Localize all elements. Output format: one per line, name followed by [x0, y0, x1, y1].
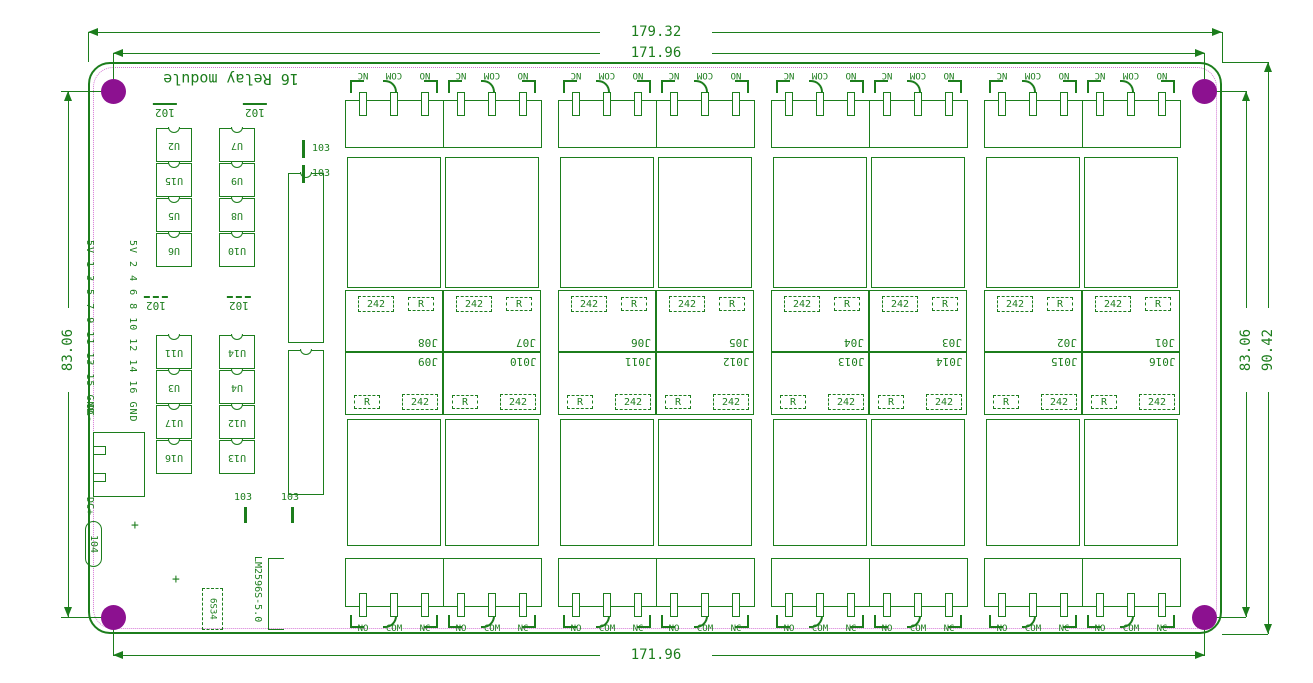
terminal-pin-label: NC — [870, 70, 904, 80]
ic-ref-label: U5 — [168, 210, 180, 221]
resistor-box: R — [932, 297, 958, 311]
relay-body — [658, 419, 752, 546]
ic-notch — [231, 232, 243, 238]
terminal-pin-label: NO — [1145, 70, 1179, 80]
jumper-label: J014 — [936, 355, 963, 368]
terminal-pin — [1158, 92, 1166, 116]
ic-u6: U6 — [156, 233, 192, 267]
terminal-pin-label: NO — [408, 70, 442, 80]
ic-ref-label: U8 — [231, 210, 243, 221]
resistor-box: R — [1145, 297, 1171, 311]
dim-arrow — [1195, 651, 1205, 659]
terminal-pin — [998, 593, 1006, 617]
resistor-box: R — [719, 297, 745, 311]
ic-group-label: 102 — [227, 296, 251, 312]
terminal-pin — [1060, 92, 1068, 116]
resistor-box: R — [834, 297, 860, 311]
terminal-pin — [457, 593, 465, 617]
mounting-hole — [1192, 605, 1217, 630]
dc-plus-label: DC+ — [84, 497, 95, 515]
marker-bar — [244, 507, 247, 523]
ic-notch — [168, 197, 180, 203]
part-242-box: 242 — [1041, 394, 1077, 410]
jumper-label: J010 — [510, 355, 537, 368]
terminal-pin — [816, 92, 824, 116]
ic-u8: U8 — [219, 198, 255, 232]
ic-group-label: 102 — [243, 103, 267, 119]
marker-bar — [291, 507, 294, 523]
terminal-pin — [603, 92, 611, 116]
relay-driver-cell: J010R242 — [443, 352, 541, 415]
terminal-pin — [519, 593, 527, 617]
relay-body — [986, 157, 1080, 288]
resistor-box: R — [780, 395, 806, 409]
resistor-box: R — [878, 395, 904, 409]
ic-u16: U16 — [156, 440, 192, 474]
terminal-pin — [634, 92, 642, 116]
relay-driver-cell: 242RJ07 — [443, 290, 541, 352]
resistor-box: R — [1047, 297, 1073, 311]
ic-ref-label: U10 — [228, 245, 246, 256]
dim-text-left: 83.06 — [60, 308, 76, 392]
relay-body — [773, 419, 867, 546]
ic-notch — [231, 404, 243, 410]
marker-label-103: 103 — [281, 492, 299, 503]
relay-body — [871, 419, 965, 546]
jumper-label: J07 — [516, 336, 536, 349]
part-242-box: 242 — [615, 394, 651, 410]
ic-notch — [168, 162, 180, 168]
terminal-pin — [785, 92, 793, 116]
resistor-box: R — [452, 395, 478, 409]
terminal-pin-label: NO — [932, 70, 966, 80]
dim-arrow — [1242, 607, 1250, 617]
terminal-block-divider — [869, 100, 870, 148]
marker-bar — [302, 140, 305, 158]
dim-arrow — [1212, 28, 1222, 36]
ic-u13: U13 — [219, 440, 255, 474]
plus-mark: + — [172, 572, 180, 587]
dip-ic — [288, 350, 324, 495]
ic-u11: U11 — [156, 335, 192, 369]
ic-u3: U3 — [156, 370, 192, 404]
terminal-pin — [572, 593, 580, 617]
jumper-label: J011 — [625, 355, 652, 368]
marker-label-103: 103 — [312, 168, 330, 179]
terminal-pin-label: NC — [346, 70, 380, 80]
dim-arrow — [1264, 62, 1272, 72]
terminal-pin-label: COM — [377, 70, 411, 80]
terminal-block-divider — [1082, 100, 1083, 148]
dc-minus-label: DC- — [84, 404, 95, 422]
dim-arrow — [1242, 91, 1250, 101]
terminal-pin-label: NO — [834, 70, 868, 80]
mounting-hole — [101, 605, 126, 630]
ic-notch — [231, 197, 243, 203]
terminal-block-divider — [1082, 558, 1083, 607]
part-242-box: 242 — [1139, 394, 1175, 410]
marker-label-103: 103 — [234, 492, 252, 503]
terminal-pin-label: NO — [719, 70, 753, 80]
ic-group-label: 102 — [153, 103, 177, 119]
ic-u5: U5 — [156, 198, 192, 232]
terminal-pin-label: COM — [1016, 70, 1050, 80]
relay-driver-cell: 242RJ01 — [1082, 290, 1180, 352]
terminal-pin — [519, 92, 527, 116]
relay-driver-cell: J013R242 — [771, 352, 869, 415]
terminal-block-divider — [656, 100, 657, 148]
terminal-pin — [670, 593, 678, 617]
relay-body — [773, 157, 867, 288]
resistor-box: R — [408, 297, 434, 311]
marker-label-103: 103 — [312, 143, 330, 154]
ic-u10: U10 — [219, 233, 255, 267]
dim-text-bottom: 171.96 — [600, 647, 712, 663]
terminal-pin-label: COM — [1114, 70, 1148, 80]
terminal-pin-label: NC — [444, 70, 478, 80]
jumper-label: J06 — [631, 336, 651, 349]
ic-ref-label: U6 — [168, 245, 180, 256]
jumper-label: J01 — [1155, 336, 1175, 349]
part-242-box: 242 — [571, 296, 607, 312]
terminal-pin — [1158, 593, 1166, 617]
relay-driver-cell: J09R242 — [345, 352, 443, 415]
part-242-box: 242 — [358, 296, 394, 312]
terminal-pin — [945, 593, 953, 617]
terminal-pin — [816, 593, 824, 617]
terminal-pin — [998, 92, 1006, 116]
terminal-pin — [701, 92, 709, 116]
board-title: 16 Relay module — [148, 70, 314, 88]
terminal-pin-label: NC — [559, 70, 593, 80]
terminal-pin — [572, 92, 580, 116]
terminal-pin-label: NC — [985, 70, 1019, 80]
relay-driver-cell: J014R242 — [869, 352, 967, 415]
part-242-box: 242 — [882, 296, 918, 312]
part-242-box: 242 — [500, 394, 536, 410]
ic-notch — [168, 127, 180, 133]
terminal-pin — [883, 92, 891, 116]
terminal-pin-label: COM — [475, 70, 509, 80]
terminal-pin — [488, 92, 496, 116]
diode-label: 6S34 — [208, 598, 218, 620]
terminal-block-divider — [443, 558, 444, 607]
part-242-box: 242 — [402, 394, 438, 410]
dim-arrow — [113, 49, 123, 57]
ic-notch — [231, 127, 243, 133]
terminal-pin — [1029, 593, 1037, 617]
relay-driver-cell: 242RJ04 — [771, 290, 869, 352]
ic-ref-label: U11 — [165, 347, 183, 358]
terminal-pin — [390, 593, 398, 617]
ic-u17: U17 — [156, 405, 192, 439]
relay-body — [560, 419, 654, 546]
terminal-pin-label: NC — [772, 70, 806, 80]
resistor-box: R — [1091, 395, 1117, 409]
terminal-pin — [847, 593, 855, 617]
mounting-hole — [1192, 79, 1217, 104]
relay-driver-cell: 242RJ05 — [656, 290, 754, 352]
ic-notch — [231, 334, 243, 340]
terminal-pin-label: NC — [657, 70, 691, 80]
ic-u12: U12 — [219, 405, 255, 439]
relay-driver-cell: 242RJ08 — [345, 290, 443, 352]
terminal-block-divider — [869, 558, 870, 607]
resistor-box: R — [354, 395, 380, 409]
relay-body — [986, 419, 1080, 546]
ic-ref-label: U16 — [165, 452, 183, 463]
dim-arrow — [1195, 49, 1205, 57]
ic-ref-label: U2 — [168, 140, 180, 151]
ic-notch — [231, 369, 243, 375]
power-port-label: 104 — [88, 535, 99, 553]
terminal-pin — [1096, 593, 1104, 617]
terminal-pin — [732, 92, 740, 116]
dim-text-top-outer: 179.32 — [600, 24, 712, 40]
ic-ref-label: U12 — [228, 417, 246, 428]
pcb-layout-drawing: 179.32 171.96 171.96 83.06 83.06 90.42 1… — [0, 0, 1313, 683]
dip-ic — [288, 173, 324, 343]
terminal-block-divider — [656, 558, 657, 607]
relay-driver-cell: J011R242 — [558, 352, 656, 415]
terminal-pin-label: NO — [621, 70, 655, 80]
terminal-pin — [421, 593, 429, 617]
terminal-pin — [1060, 593, 1068, 617]
relay-body — [1084, 419, 1178, 546]
relay-driver-cell: 242RJ06 — [558, 290, 656, 352]
jumper-label: J013 — [838, 355, 865, 368]
ic-ref-label: U4 — [231, 382, 243, 393]
terminal-pin-label: NO — [1047, 70, 1081, 80]
jumper-label: J02 — [1057, 336, 1077, 349]
terminal-pin — [701, 593, 709, 617]
terminal-block-divider — [443, 100, 444, 148]
terminal-pin-label: COM — [803, 70, 837, 80]
ic-ref-label: U3 — [168, 382, 180, 393]
dim-text-right-inner: 83.06 — [1238, 308, 1254, 392]
terminal-pin — [670, 92, 678, 116]
terminal-pin — [457, 92, 465, 116]
ic-ref-label: U17 — [165, 417, 183, 428]
terminal-pin — [488, 593, 496, 617]
extension-line — [1222, 62, 1268, 63]
terminal-pin — [634, 593, 642, 617]
terminal-pin-label: NO — [506, 70, 540, 80]
ic-ref-label: U9 — [231, 175, 243, 186]
resistor-box: R — [993, 395, 1019, 409]
dim-arrow — [1264, 624, 1272, 634]
ic-u2: U2 — [156, 128, 192, 162]
marker-bar — [302, 165, 305, 183]
ic-ref-label: U7 — [231, 140, 243, 151]
regulator-label: LM2596S-5.0 — [252, 556, 263, 622]
ic-notch — [168, 369, 180, 375]
header-pin-labels-row2: 5V 2 4 6 8 10 12 14 16 GND — [127, 240, 138, 436]
terminal-pin — [1096, 92, 1104, 116]
ic-u9: U9 — [219, 163, 255, 197]
dim-arrow — [113, 651, 123, 659]
part-242-box: 242 — [669, 296, 705, 312]
terminal-pin — [1127, 92, 1135, 116]
dc-connector-pin — [93, 473, 106, 482]
ic-u14: U14 — [219, 335, 255, 369]
jumper-label: J05 — [729, 336, 749, 349]
resistor-box: R — [665, 395, 691, 409]
extension-line — [1222, 32, 1223, 62]
relay-driver-cell: J012R242 — [656, 352, 754, 415]
ic-notch — [231, 439, 243, 445]
ic-ref-label: U15 — [165, 175, 183, 186]
resistor-box: R — [567, 395, 593, 409]
part-242-box: 242 — [1095, 296, 1131, 312]
dim-text-top-inner: 171.96 — [600, 45, 712, 61]
jumper-label: J03 — [942, 336, 962, 349]
dim-arrow — [64, 607, 72, 617]
ic-notch — [300, 349, 312, 355]
terminal-pin-label: COM — [590, 70, 624, 80]
ic-notch — [168, 439, 180, 445]
relay-body — [445, 157, 539, 288]
part-242-box: 242 — [456, 296, 492, 312]
dc-connector — [93, 432, 145, 497]
terminal-pin-label: COM — [688, 70, 722, 80]
diode-outline: 6S34 — [202, 588, 223, 630]
jumper-label: J04 — [844, 336, 864, 349]
relay-driver-cell: J016R242 — [1082, 352, 1180, 415]
relay-body — [445, 419, 539, 546]
terminal-pin — [785, 593, 793, 617]
terminal-pin — [847, 92, 855, 116]
ic-notch — [168, 232, 180, 238]
mounting-hole — [101, 79, 126, 104]
part-242-box: 242 — [997, 296, 1033, 312]
terminal-pin — [914, 593, 922, 617]
ic-group-label: 102 — [144, 296, 168, 312]
terminal-pin-label: COM — [901, 70, 935, 80]
jumper-label: J09 — [418, 355, 438, 368]
relay-body — [560, 157, 654, 288]
extension-line — [88, 32, 89, 62]
part-242-box: 242 — [713, 394, 749, 410]
relay-body — [347, 419, 441, 546]
relay-driver-cell: J015R242 — [984, 352, 1082, 415]
terminal-pin — [914, 92, 922, 116]
resistor-box: R — [621, 297, 647, 311]
dc-connector-pin — [93, 446, 106, 455]
jumper-label: J016 — [1149, 355, 1176, 368]
ic-notch — [231, 162, 243, 168]
terminal-pin — [1127, 593, 1135, 617]
terminal-pin — [883, 593, 891, 617]
dim-text-right-outer: 90.42 — [1260, 308, 1276, 392]
terminal-pin — [421, 92, 429, 116]
ic-ref-label: U14 — [228, 347, 246, 358]
jumper-label: J012 — [723, 355, 750, 368]
relay-body — [1084, 157, 1178, 288]
terminal-pin — [945, 92, 953, 116]
regulator-outline — [268, 558, 284, 630]
part-242-box: 242 — [926, 394, 962, 410]
ic-u15: U15 — [156, 163, 192, 197]
ic-notch — [168, 334, 180, 340]
ic-ref-label: U13 — [228, 452, 246, 463]
jumper-label: J08 — [418, 336, 438, 349]
ic-notch — [168, 404, 180, 410]
power-port-outline: 104 — [85, 521, 102, 567]
part-242-box: 242 — [784, 296, 820, 312]
relay-driver-cell: 242RJ02 — [984, 290, 1082, 352]
terminal-pin — [603, 593, 611, 617]
ic-u7: U7 — [219, 128, 255, 162]
terminal-pin — [732, 593, 740, 617]
terminal-pin — [1029, 92, 1037, 116]
resistor-box: R — [506, 297, 532, 311]
extension-line — [1222, 634, 1268, 635]
jumper-label: J015 — [1051, 355, 1078, 368]
terminal-pin — [359, 92, 367, 116]
dim-arrow — [64, 91, 72, 101]
terminal-pin — [359, 593, 367, 617]
ic-u4: U4 — [219, 370, 255, 404]
plus-mark: + — [131, 518, 139, 533]
relay-body — [658, 157, 752, 288]
dim-arrow — [88, 28, 98, 36]
terminal-pin-label: NC — [1083, 70, 1117, 80]
part-242-box: 242 — [828, 394, 864, 410]
relay-body — [347, 157, 441, 288]
terminal-pin — [390, 92, 398, 116]
relay-driver-cell: 242RJ03 — [869, 290, 967, 352]
relay-body — [871, 157, 965, 288]
